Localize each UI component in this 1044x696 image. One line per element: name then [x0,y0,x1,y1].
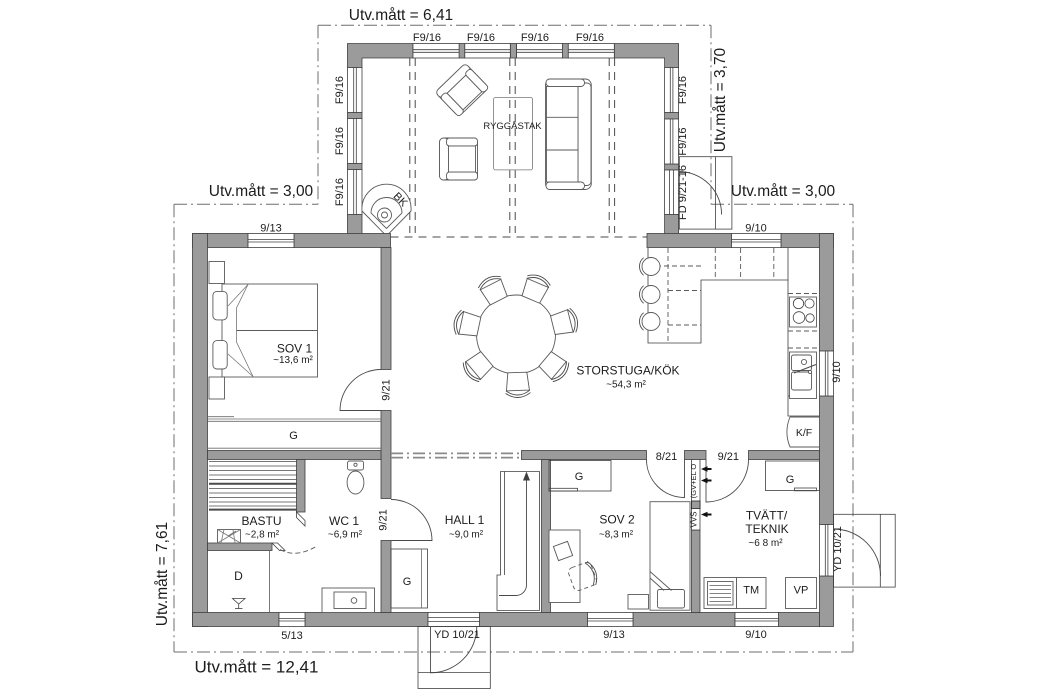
svg-text:5/13: 5/13 [281,630,302,642]
svg-text:9/10: 9/10 [745,629,766,641]
svg-text:F9/16: F9/16 [334,76,346,104]
svg-text:RYGGÅSTAK: RYGGÅSTAK [483,121,542,132]
svg-text:K/F: K/F [796,427,812,439]
svg-text:Utv.mått = 6,41: Utv.mått = 6,41 [349,7,453,24]
svg-text:9/10: 9/10 [831,361,843,382]
svg-text:F9/16: F9/16 [521,32,549,44]
svg-text:9/21: 9/21 [378,509,390,530]
svg-text:Utv.mått = 3,70: Utv.mått = 3,70 [712,47,729,152]
svg-text:FD 9/21-16: FD 9/21-16 [677,165,689,220]
svg-text:YD 10/21: YD 10/21 [434,629,480,641]
svg-text:Utv.mått = 3,00: Utv.mått = 3,00 [731,183,836,200]
svg-text:HALL 1: HALL 1 [445,513,485,527]
svg-text:~9,0 m²: ~9,0 m² [449,530,484,541]
svg-text:SOV 2: SOV 2 [599,513,635,527]
svg-text:9/10: 9/10 [745,223,766,235]
svg-text:F9/16: F9/16 [576,32,604,44]
svg-text:Utv.mått = 3,00: Utv.mått = 3,00 [209,183,314,200]
svg-text:VVS: VVS [690,511,699,527]
svg-text:G: G [575,471,584,483]
svg-text:TVÄTT/: TVÄTT/ [746,509,788,523]
svg-text:~13,6 m²: ~13,6 m² [273,355,313,366]
svg-text:G: G [289,430,298,442]
svg-text:TM: TM [743,585,759,597]
svg-text:F9/16: F9/16 [677,76,689,104]
svg-text:VP: VP [794,585,809,597]
svg-text:(GV+EL O: (GV+EL O [689,464,698,499]
svg-text:9/21: 9/21 [718,451,739,463]
svg-text:F9/16: F9/16 [334,127,346,155]
svg-text:D: D [234,569,243,583]
svg-text:F9/16: F9/16 [467,32,495,44]
svg-text:Utv.mått = 7,61: Utv.mått = 7,61 [154,522,171,626]
svg-text:~54,3 m²: ~54,3 m² [606,380,646,391]
svg-text:9/21: 9/21 [381,379,393,400]
svg-text:8/21: 8/21 [656,451,677,463]
svg-text:G: G [786,474,795,486]
svg-text:F9/16: F9/16 [334,178,346,206]
svg-text:F9/16: F9/16 [413,32,441,44]
svg-text:9/13: 9/13 [260,223,281,235]
svg-text:BASTU: BASTU [241,514,281,528]
svg-text:Utv.mått = 12,41: Utv.mått = 12,41 [195,658,319,677]
svg-text:WC 1: WC 1 [329,514,359,528]
svg-text:SOV 1: SOV 1 [277,342,313,356]
svg-text:G: G [403,576,412,588]
svg-text:~6,9 m²: ~6,9 m² [328,530,363,541]
svg-text:~6 8 m²: ~6 8 m² [748,538,783,549]
svg-text:F9/16: F9/16 [677,127,689,155]
svg-text:~8,3 m²: ~8,3 m² [599,530,634,541]
svg-text:~2,8 m²: ~2,8 m² [245,530,280,541]
svg-text:STORSTUGA/KÖK: STORSTUGA/KÖK [576,364,679,378]
svg-text:TEKNIK: TEKNIK [745,522,788,536]
svg-text:9/13: 9/13 [603,629,624,641]
